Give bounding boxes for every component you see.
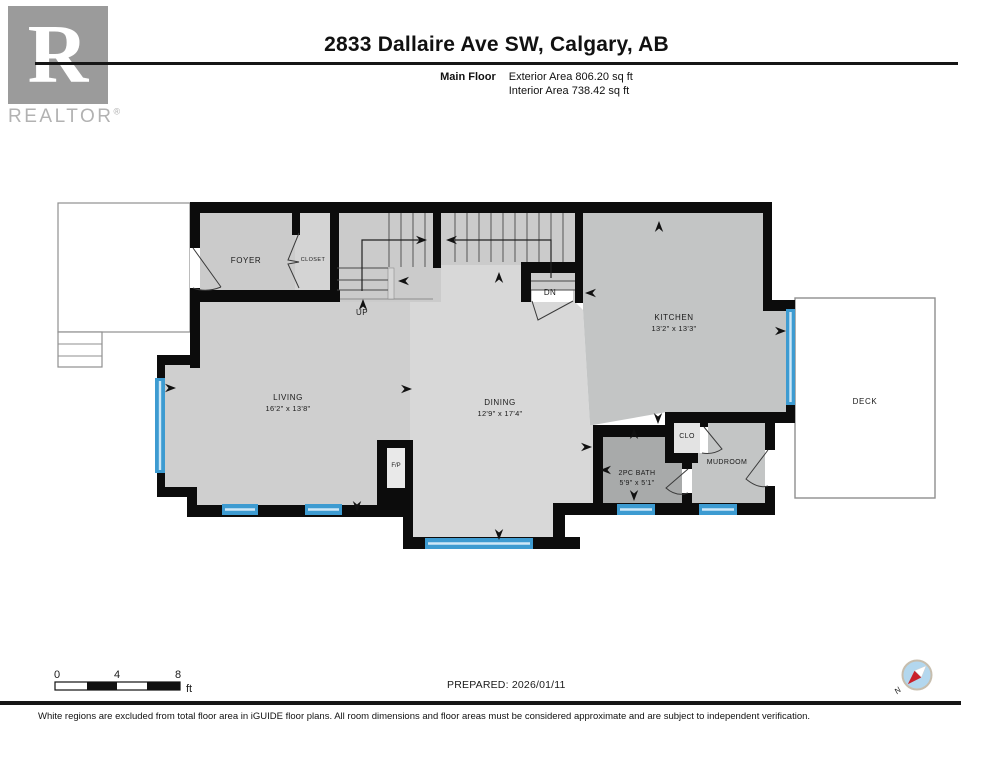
wall-segment — [763, 202, 772, 309]
scale-tick-4: 4 — [114, 669, 120, 681]
wall-segment — [433, 212, 441, 268]
dims-dining: 12'9" x 17'4" — [477, 409, 522, 418]
wall-segment — [765, 423, 775, 450]
scale-tick-0: 0 — [54, 669, 60, 681]
closet-floor — [295, 213, 331, 298]
label-closet: CLOSET — [301, 257, 326, 263]
label-dining: DINING — [484, 398, 516, 407]
wall-segment — [190, 202, 772, 213]
prepared-date: PREPARED: 2026/01/11 — [447, 679, 566, 691]
label-dn: DN — [544, 288, 556, 297]
label-bath: 2PC BATH — [619, 470, 656, 477]
wall-segment — [190, 202, 200, 248]
mudroom-door-opening — [765, 450, 775, 486]
label-foyer: FOYER — [231, 256, 262, 265]
dims-living: 16'2" x 13'8" — [265, 404, 310, 413]
porch — [58, 203, 190, 367]
compass-north-label: N — [893, 685, 903, 696]
label-fireplace: F/P — [391, 463, 400, 469]
wall-segment — [190, 290, 340, 302]
entry-door-opening — [190, 248, 200, 288]
wall-segment — [553, 503, 775, 515]
stair-rail-strip — [388, 268, 394, 299]
wall-segment — [330, 213, 339, 302]
label-clo: CLO — [679, 433, 695, 440]
label-deck: DECK — [853, 397, 878, 406]
scale-tick-8: 8 — [175, 669, 181, 681]
compass-icon: N — [893, 661, 932, 696]
footer-disclaimer: White regions are excluded from total fl… — [38, 711, 958, 722]
wall-segment — [521, 262, 531, 302]
scale-bar: 0 4 8 ft — [54, 669, 192, 695]
label-living: LIVING — [273, 393, 303, 402]
wall-segment — [665, 453, 698, 463]
scale-unit: ft — [186, 683, 192, 695]
porch-steps — [58, 332, 102, 367]
direction-arrow — [654, 413, 662, 424]
wall-segment — [682, 453, 692, 469]
label-kitchen: KITCHEN — [654, 313, 693, 322]
wall-segment — [765, 486, 775, 515]
floorplan-page: R REALTOR® 2833 Dallaire Ave SW, Calgary… — [0, 0, 993, 768]
dims-kitchen: 13'2" x 13'3" — [651, 324, 696, 333]
label-mudroom: MUDROOM — [707, 459, 748, 466]
wall-segment — [292, 213, 300, 235]
label-up: UP — [356, 308, 368, 317]
dims-bath: 5'9" x 5'1" — [619, 480, 654, 487]
wall-segment — [575, 202, 583, 303]
footer-divider — [0, 701, 961, 705]
wall-segment — [665, 412, 795, 423]
floorplan-svg: FOYER CLOSET UP DN KITCHEN 13'2" x 13'3"… — [0, 0, 993, 768]
wall-segment — [682, 493, 692, 515]
